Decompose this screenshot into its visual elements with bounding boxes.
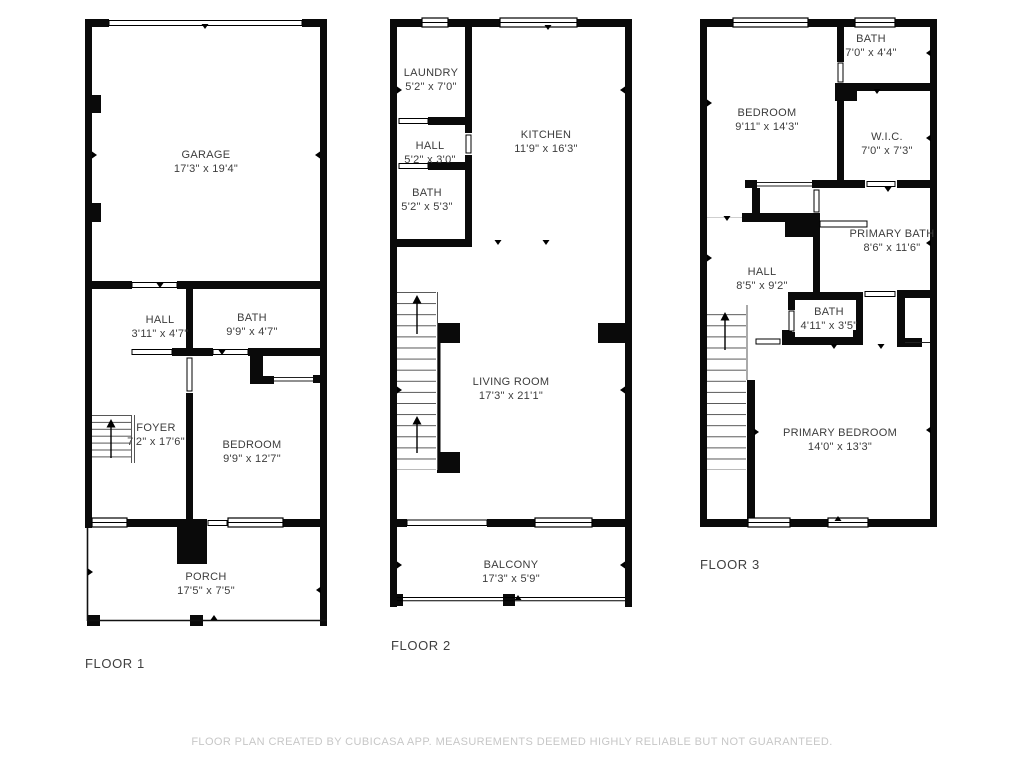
floor2-room-label-bath: BATH 5'2" x 5'3" [401, 186, 452, 214]
floor3-room-label-bath-small: BATH 4'11" x 3'5" [801, 305, 858, 333]
floor1-plan [85, 19, 327, 626]
floor2-room-label-hall: HALL 5'2" x 3'0" [404, 139, 455, 167]
disclaimer-text: FLOOR PLAN CREATED BY CUBICASA APP. MEAS… [0, 736, 1024, 748]
room-dims: 17'3" x 19'4" [174, 162, 238, 176]
floor2-stairs-icon [397, 292, 438, 470]
floor2-label: FLOOR 2 [391, 638, 451, 653]
room-name: HALL [404, 139, 455, 153]
floor3-room-label-wic: W.I.C. 7'0" x 7'3" [861, 130, 912, 158]
floor1-room-label-porch: PORCH 17'5" x 7'5" [177, 570, 235, 598]
room-dims: 14'0" x 13'3" [783, 440, 897, 454]
floor1-room-label-garage: GARAGE 17'3" x 19'4" [174, 148, 238, 176]
room-dims: 5'2" x 5'3" [401, 200, 452, 214]
room-dims: 5'2" x 3'0" [404, 153, 455, 167]
floor2-plan [390, 18, 632, 607]
floor2-room-label-living-room: LIVING ROOM 17'3" x 21'1" [473, 375, 550, 403]
floor1-walls [85, 19, 327, 626]
room-name: W.I.C. [861, 130, 912, 144]
room-name: BEDROOM [735, 106, 798, 120]
room-name: BATH [401, 186, 452, 200]
room-name: HALL [736, 265, 787, 279]
floor1-room-label-bedroom: BEDROOM 9'9" x 12'7" [223, 438, 282, 466]
floor3-room-label-hall: HALL 8'5" x 9'2" [736, 265, 787, 293]
floor3-room-label-bedroom: BEDROOM 9'11" x 14'3" [735, 106, 798, 134]
floor2-room-label-laundry: LAUNDRY 5'2" x 7'0" [404, 66, 458, 94]
floor3-label: FLOOR 3 [700, 557, 760, 572]
floor1-room-label-hall: HALL 3'11" x 4'7" [132, 313, 189, 341]
room-dims: 17'5" x 7'5" [177, 584, 235, 598]
room-dims: 11'9" x 16'3" [514, 142, 577, 156]
room-dims: 9'9" x 12'7" [223, 452, 282, 466]
room-name: BATH [226, 311, 277, 325]
room-name: PRIMARY BEDROOM [783, 426, 897, 440]
room-name: BEDROOM [223, 438, 282, 452]
room-name: BATH [801, 305, 858, 319]
floorplan-page: GARAGE 17'3" x 19'4" HALL 3'11" x 4'7" B… [0, 0, 1024, 768]
floor2-windows [422, 18, 592, 527]
room-name: BATH [845, 32, 896, 46]
room-dims: 9'11" x 14'3" [735, 120, 798, 134]
room-dims: 17'3" x 21'1" [473, 389, 550, 403]
floor3-room-label-primary-bath: PRIMARY BATH 8'6" x 11'6" [850, 227, 935, 255]
room-dims: 7'2" x 17'6" [127, 435, 185, 449]
floor2-room-label-kitchen: KITCHEN 11'9" x 16'3" [514, 128, 577, 156]
room-dims: 7'0" x 7'3" [861, 144, 912, 158]
floor3-room-label-bath: BATH 7'0" x 4'4" [845, 32, 896, 60]
room-name: GARAGE [174, 148, 238, 162]
room-name: KITCHEN [514, 128, 577, 142]
room-name: PORCH [177, 570, 235, 584]
room-dims: 8'5" x 9'2" [736, 279, 787, 293]
room-dims: 9'9" x 4'7" [226, 325, 277, 339]
room-name: BALCONY [482, 558, 540, 572]
room-name: LAUNDRY [404, 66, 458, 80]
room-dims: 5'2" x 7'0" [404, 80, 458, 94]
room-dims: 4'11" x 3'5" [801, 319, 858, 333]
room-dims: 7'0" x 4'4" [845, 46, 896, 60]
floor3-stairs-icon [707, 305, 747, 470]
floor1-room-label-foyer: FOYER 7'2" x 17'6" [127, 421, 185, 449]
floor2-room-label-balcony: BALCONY 17'3" x 5'9" [482, 558, 540, 586]
room-dims: 8'6" x 11'6" [850, 241, 935, 255]
floor1-label: FLOOR 1 [85, 656, 145, 671]
room-dims: 3'11" x 4'7" [132, 327, 189, 341]
room-name: PRIMARY BATH [850, 227, 935, 241]
floor3-room-label-primary-bedroom: PRIMARY BEDROOM 14'0" x 13'3" [783, 426, 897, 454]
room-name: LIVING ROOM [473, 375, 550, 389]
room-name: HALL [132, 313, 189, 327]
floor1-room-label-bath: BATH 9'9" x 4'7" [226, 311, 277, 339]
room-dims: 17'3" x 5'9" [482, 572, 540, 586]
room-name: FOYER [127, 421, 185, 435]
